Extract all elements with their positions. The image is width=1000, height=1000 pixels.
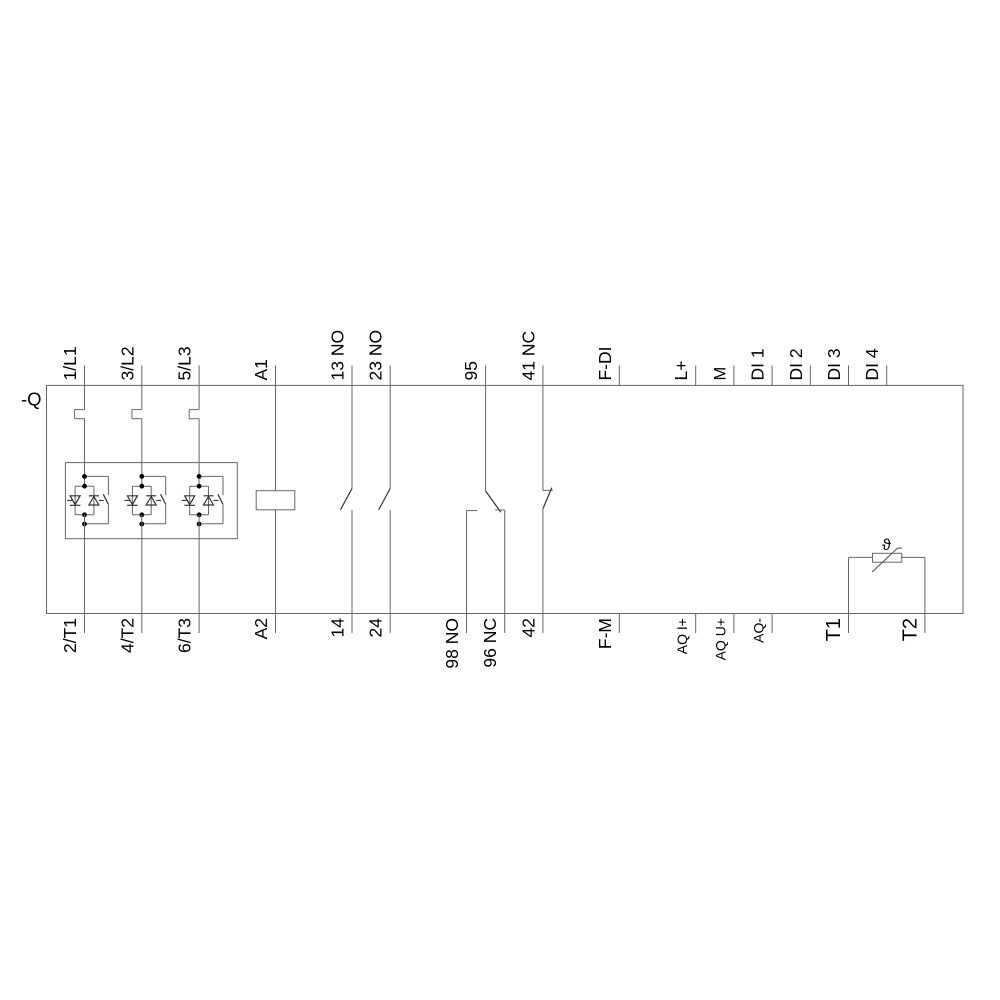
svg-text:41 NC: 41 NC <box>518 331 538 381</box>
svg-text:6/T3: 6/T3 <box>175 618 195 653</box>
svg-text:ϑ: ϑ <box>882 537 891 554</box>
svg-text:4/T2: 4/T2 <box>117 618 137 653</box>
svg-text:DI 3: DI 3 <box>824 348 844 380</box>
svg-text:24: 24 <box>366 618 386 638</box>
svg-text:A2: A2 <box>251 618 271 639</box>
svg-text:13 NO: 13 NO <box>328 330 348 381</box>
svg-text:98 NO: 98 NO <box>442 618 462 669</box>
svg-text:L+: L+ <box>671 361 691 381</box>
svg-text:M: M <box>711 367 729 381</box>
svg-text:-Q: -Q <box>21 389 42 410</box>
svg-text:DI 1: DI 1 <box>748 348 768 380</box>
svg-text:T1: T1 <box>823 618 845 641</box>
svg-text:5/L3: 5/L3 <box>175 346 195 380</box>
svg-text:T2: T2 <box>899 618 921 641</box>
svg-text:1/L1: 1/L1 <box>60 346 80 380</box>
svg-text:14: 14 <box>328 618 348 638</box>
svg-text:AQ I+: AQ I+ <box>674 618 690 654</box>
svg-text:DI 2: DI 2 <box>786 348 806 380</box>
svg-text:AQ-: AQ- <box>751 618 767 643</box>
svg-text:AQ U+: AQ U+ <box>712 618 728 660</box>
svg-text:2/T1: 2/T1 <box>60 618 80 653</box>
svg-text:F-DI: F-DI <box>595 346 615 380</box>
svg-text:3/L2: 3/L2 <box>117 346 137 380</box>
svg-text:23 NO: 23 NO <box>366 330 386 381</box>
svg-text:F-M: F-M <box>595 618 615 649</box>
svg-text:96 NC: 96 NC <box>480 618 500 668</box>
svg-text:A1: A1 <box>251 359 271 380</box>
svg-text:DI 4: DI 4 <box>862 348 882 380</box>
svg-text:95: 95 <box>461 361 481 380</box>
svg-text:42: 42 <box>518 618 538 637</box>
